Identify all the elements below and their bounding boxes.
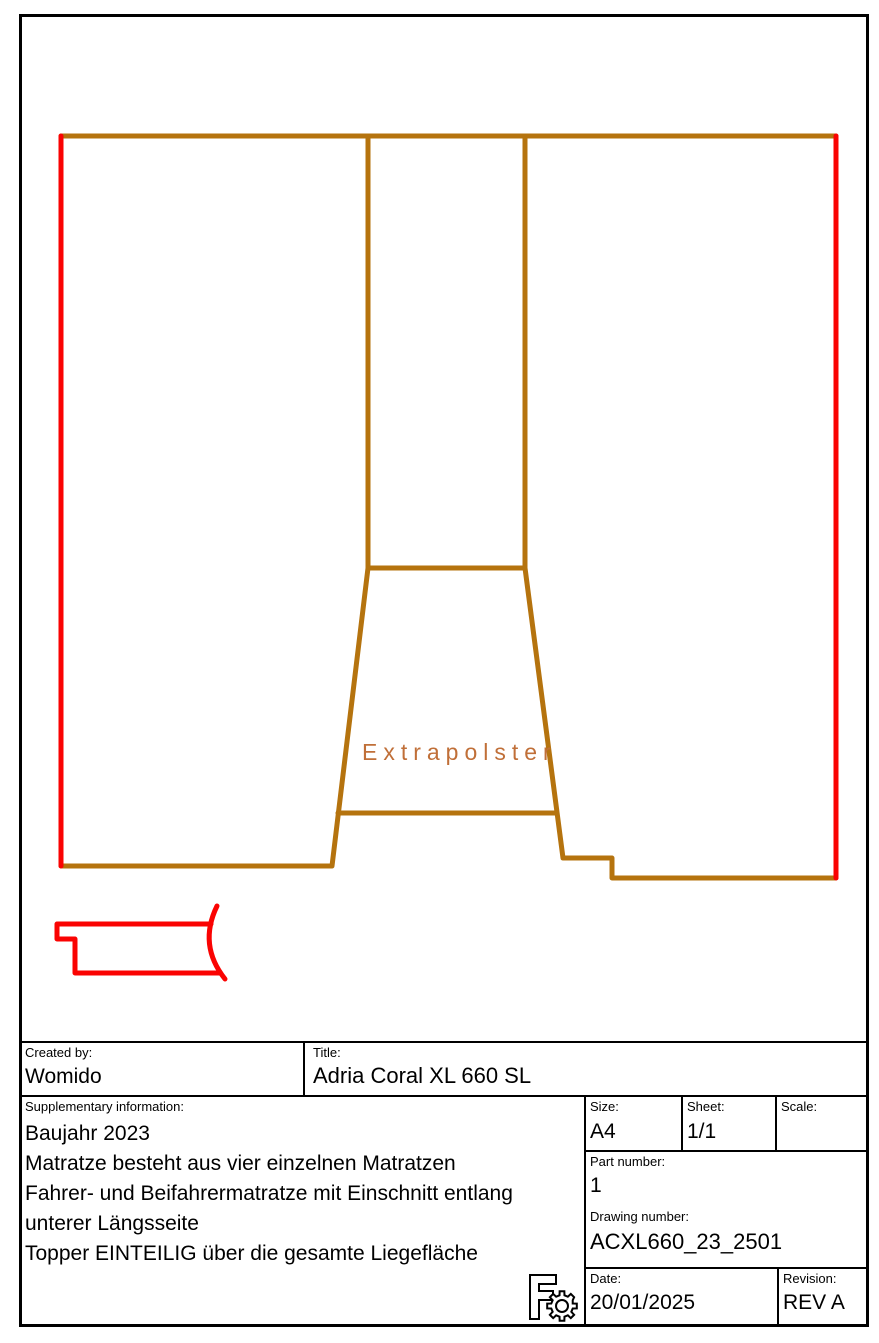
supplementary-line: Fahrer- und Beifahrermatratze mit Einsch… [25,1179,513,1209]
titleblock-size-row-line [584,1150,869,1152]
supplementary-label: Supplementary information: [25,1099,184,1114]
right-column-divider [584,1095,586,1327]
title-label: Title: [313,1045,341,1060]
extrapolster-label: Extrapolster [362,739,557,765]
sheet-scale-divider [775,1095,777,1150]
title-value: Adria Coral XL 660 SL [313,1063,531,1088]
profile-curve [209,906,225,979]
revision-label: Revision: [783,1271,836,1286]
drawing-number-value: ACXL660_23_2501 [590,1229,782,1254]
titleblock-date-row-line [584,1267,869,1269]
created-by-label: Created by: [25,1045,92,1060]
titleblock-row1-line [19,1095,869,1097]
center-cushion-walls [368,136,525,568]
drawing-sheet: { "colors": { "red": "#fa0302", "brown":… [0,0,879,1343]
titleblock-top-line [19,1041,869,1043]
supplementary-line: Baujahr 2023 [25,1119,513,1149]
part-number-label: Part number: [590,1154,665,1169]
created-title-divider [303,1041,305,1095]
supplementary-line: unterer Längsseite [25,1209,513,1239]
freecad-logo-icon [524,1266,584,1328]
supplementary-text: Baujahr 2023 Matratze besteht aus vier e… [25,1119,513,1269]
date-revision-divider [777,1267,779,1327]
profile-notch [57,924,219,973]
revision-value: REV A [783,1291,845,1315]
size-value: A4 [590,1120,616,1144]
part-number-value: 1 [590,1174,602,1198]
size-label: Size: [590,1099,619,1114]
logo-gear-hole [556,1300,568,1312]
mattress-outline-brown [61,136,836,878]
date-value: 20/01/2025 [590,1291,695,1315]
cut-lines-red [57,136,836,979]
date-label: Date: [590,1271,621,1286]
scale-label: Scale: [781,1099,817,1114]
sheet-value: 1/1 [687,1120,716,1144]
sheet-label: Sheet: [687,1099,725,1114]
created-by-value: Womido [25,1065,102,1089]
left-slant-and-bottom [61,568,368,866]
supplementary-line: Topper EINTEILIG über die gesamte Liegef… [25,1239,513,1269]
drawing-number-label: Drawing number: [590,1209,689,1224]
supplementary-line: Matratze besteht aus vier einzelnen Matr… [25,1149,513,1179]
size-sheet-divider [681,1095,683,1150]
right-slant-step-and-bottom [525,568,836,878]
